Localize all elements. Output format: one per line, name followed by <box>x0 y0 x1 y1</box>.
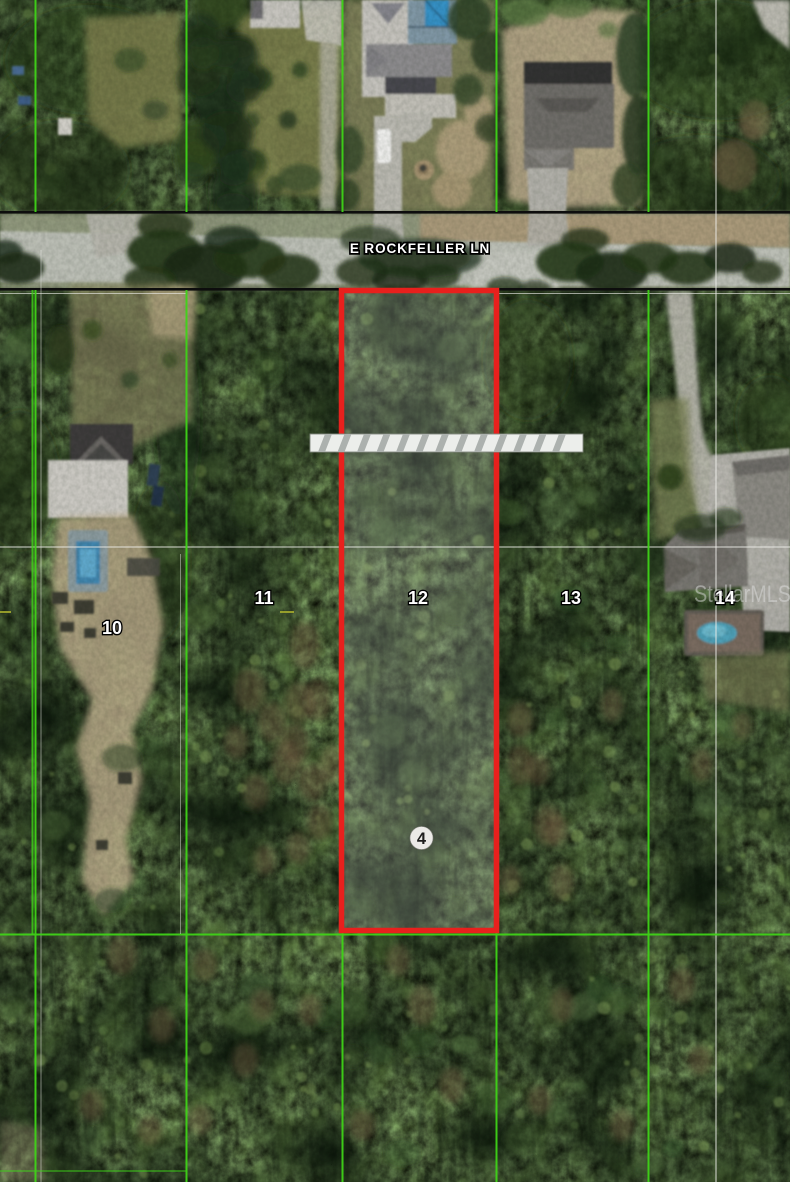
svg-text:4: 4 <box>417 830 427 848</box>
svg-text:10: 10 <box>102 618 122 638</box>
svg-text:13: 13 <box>561 588 581 608</box>
svg-text:12: 12 <box>408 588 428 608</box>
svg-text:11: 11 <box>254 588 273 608</box>
svg-text:StellarMLS: StellarMLS <box>694 581 790 608</box>
svg-text:E ROCKFELLER LN: E ROCKFELLER LN <box>350 241 490 256</box>
